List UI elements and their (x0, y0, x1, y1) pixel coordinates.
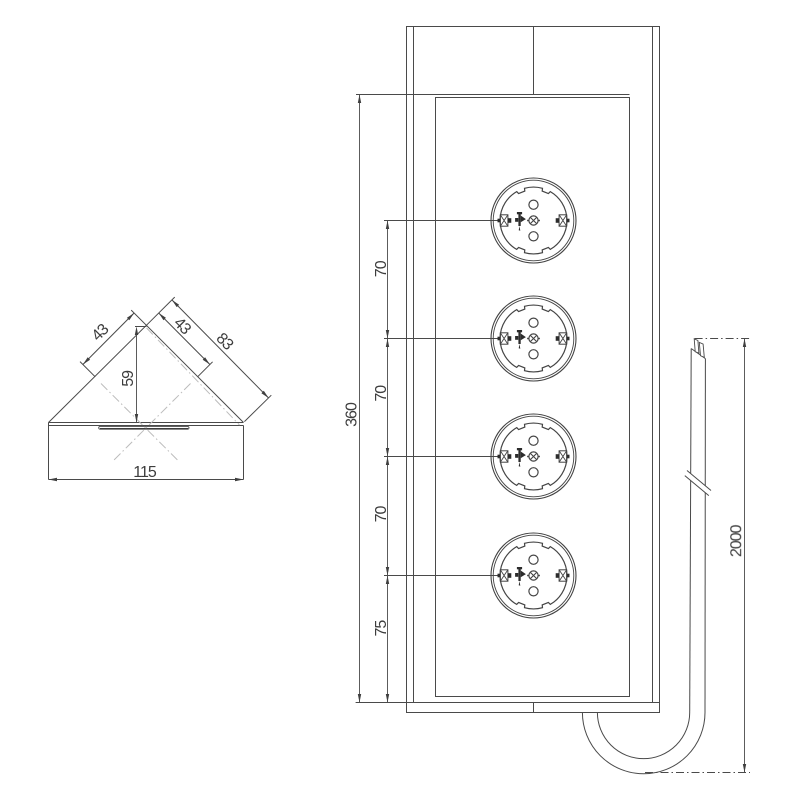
svg-text:360: 360 (343, 402, 360, 427)
svg-text:115: 115 (133, 464, 157, 481)
svg-text:70: 70 (373, 506, 390, 523)
svg-text:2000: 2000 (728, 524, 745, 557)
svg-text:59: 59 (120, 370, 137, 387)
svg-text:75: 75 (373, 620, 390, 637)
svg-text:70: 70 (373, 260, 390, 277)
svg-text:70: 70 (373, 385, 390, 402)
